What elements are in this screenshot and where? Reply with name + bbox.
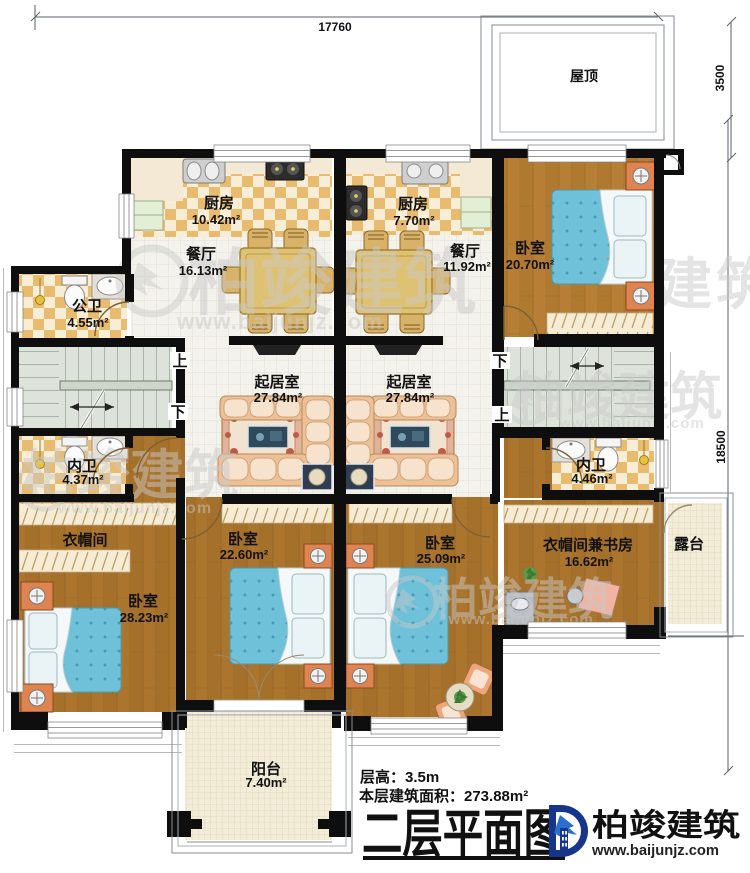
svg-text:7.70m²: 7.70m² bbox=[393, 213, 435, 228]
svg-text:厨房: 厨房 bbox=[204, 194, 234, 212]
svg-text:厨房: 厨房 bbox=[398, 195, 428, 213]
svg-text:16.13m²: 16.13m² bbox=[179, 263, 228, 278]
svg-text:4.46m²: 4.46m² bbox=[571, 471, 613, 486]
svg-text:衣帽间: 衣帽间 bbox=[62, 531, 107, 549]
svg-text:16.62m²: 16.62m² bbox=[565, 554, 614, 569]
svg-text:www.baijunjz.com: www.baijunjz.com bbox=[176, 309, 383, 334]
svg-text:27.84m²: 27.84m² bbox=[386, 390, 435, 405]
svg-text:4.55m²: 4.55m² bbox=[67, 315, 109, 330]
svg-text:露台: 露台 bbox=[674, 535, 704, 553]
svg-text:27.84m²: 27.84m² bbox=[254, 390, 303, 405]
svg-text:二层平面图: 二层平面图 bbox=[362, 806, 564, 864]
svg-text:下: 下 bbox=[170, 404, 185, 421]
svg-text:www.baijunjz.com: www.baijunjz.com bbox=[591, 843, 719, 859]
svg-text:公卫: 公卫 bbox=[72, 298, 102, 315]
svg-text:20.70m²: 20.70m² bbox=[506, 257, 555, 272]
svg-text:18500: 18500 bbox=[714, 430, 728, 464]
svg-text:10.42m²: 10.42m² bbox=[192, 212, 241, 227]
svg-text:衣帽间兼书房: 衣帽间兼书房 bbox=[543, 536, 633, 554]
svg-text:7.40m²: 7.40m² bbox=[245, 775, 287, 790]
svg-text:卧室: 卧室 bbox=[425, 534, 455, 552]
svg-text:3500: 3500 bbox=[713, 64, 727, 91]
svg-text:22.60m²: 22.60m² bbox=[220, 547, 269, 562]
svg-text:餐厅: 餐厅 bbox=[186, 245, 216, 263]
svg-text:柏竣建筑: 柏竣建筑 bbox=[592, 808, 740, 843]
svg-text:卧室: 卧室 bbox=[128, 592, 158, 610]
svg-text:上: 上 bbox=[172, 353, 187, 370]
svg-text:餐厅: 餐厅 bbox=[450, 242, 480, 260]
svg-text:起居室: 起居室 bbox=[253, 373, 299, 391]
svg-text:17760: 17760 bbox=[318, 20, 352, 34]
svg-text:建筑: 建筑 bbox=[656, 253, 750, 316]
svg-text:下: 下 bbox=[492, 353, 507, 370]
svg-text:屋顶: 屋顶 bbox=[570, 68, 598, 84]
svg-text:28.23m²: 28.23m² bbox=[120, 610, 169, 625]
svg-text:11.92m²: 11.92m² bbox=[443, 259, 491, 274]
svg-text:www.baijunjz.com: www.baijunjz.com bbox=[57, 500, 212, 517]
svg-text:起居室: 起居室 bbox=[385, 373, 431, 391]
svg-text:本层建筑面积：273.88m²: 本层建筑面积：273.88m² bbox=[359, 787, 528, 805]
svg-text:上: 上 bbox=[494, 407, 509, 424]
svg-text:4.37m²: 4.37m² bbox=[62, 472, 104, 487]
svg-text:25.09m²: 25.09m² bbox=[417, 551, 466, 566]
svg-text:卧室: 卧室 bbox=[228, 530, 258, 548]
svg-text:卧室: 卧室 bbox=[515, 239, 545, 257]
svg-text:层高：3.5m: 层高：3.5m bbox=[360, 768, 439, 786]
